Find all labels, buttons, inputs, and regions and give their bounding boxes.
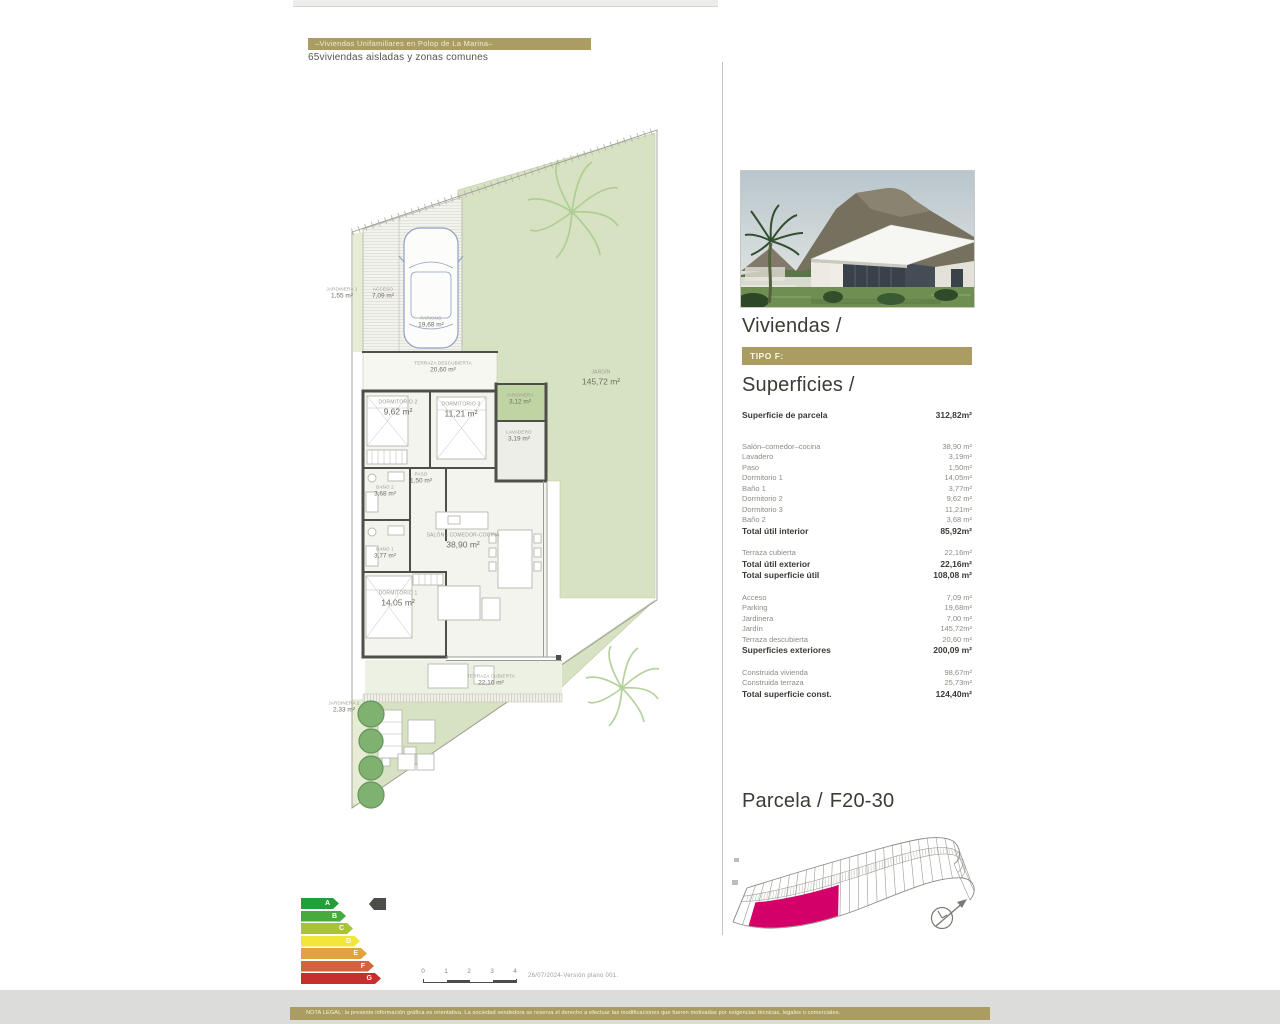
north-compass	[932, 899, 968, 929]
superficies-row: Baño 23,68 m²	[742, 515, 972, 526]
room-area: 3,77 m²	[374, 553, 396, 560]
energy-letter: B	[332, 913, 337, 920]
energy-arrow: A	[301, 898, 339, 909]
room-area: 145,72 m²	[582, 377, 620, 387]
room-name: BAÑO 1	[374, 547, 396, 552]
row-value: 98,67m²	[944, 668, 972, 679]
row-label: Dormitorio 2	[742, 494, 783, 505]
row-label: Construida terraza	[742, 678, 804, 689]
superficies-row: Lavadero3,19m²	[742, 452, 972, 463]
parcel-division	[958, 848, 971, 882]
scale-segment	[493, 980, 516, 983]
energy-letter: A	[325, 900, 330, 907]
legend-mark	[732, 880, 738, 885]
project-subtitle: 65viviendas aisladas y zonas comunes	[308, 52, 488, 63]
room-area: 22,16 m²	[467, 680, 515, 687]
row-label: Terraza cubierta	[742, 548, 796, 559]
row-value: 85,92m²	[940, 526, 972, 538]
room-area: 1,50 m²	[410, 478, 432, 485]
row-value: 20,60 m²	[942, 635, 972, 646]
viviendas-heading: Viviendas /	[742, 315, 842, 338]
parcela-code: F20-30	[830, 790, 895, 812]
scale-bar-numbers: 01234	[420, 968, 520, 976]
tipo-badge: TIPO F:	[742, 347, 972, 365]
project-title: –Viviendas Unifamiliares en Polop de La …	[315, 39, 493, 48]
room-label: TERRAZA CUBIERTA22,16 m²	[467, 674, 515, 687]
superficies-row: Jardín145,72m²	[742, 624, 972, 635]
energy-letter: D	[346, 938, 351, 945]
room-name: LAVADERO	[506, 430, 531, 435]
scale-bar	[423, 979, 517, 983]
row-value: 9,62 m²	[947, 494, 972, 505]
superficies-row: Total superficie const.124,40m²	[742, 689, 972, 701]
superficies-row: Parking19,68m²	[742, 603, 972, 614]
row-value: 19,68m²	[944, 603, 972, 614]
superficies-row: Dormitorio 311,21m²	[742, 505, 972, 516]
legal-note: NOTA LEGAL: la presente información gráf…	[306, 1010, 840, 1016]
row-value: 22,16m²	[944, 548, 972, 559]
row-label: Terraza descubierta	[742, 635, 808, 646]
parcel-strip	[733, 838, 974, 929]
row-label: Baño 2	[742, 515, 766, 526]
room-name: TERRAZA CUBIERTA	[467, 674, 515, 679]
scale-tick: 1	[444, 968, 448, 975]
row-value: 3,68 m²	[947, 515, 972, 526]
superficies-row: Acceso7,09 m²	[742, 593, 972, 604]
superficies-row: Superficie de parcela312,82m²	[742, 410, 972, 422]
room-name: PARKING	[418, 316, 444, 321]
room-area: 9,62 m²	[379, 407, 418, 417]
room-area: 7,09 m²	[372, 293, 394, 300]
legend-mark	[734, 858, 739, 862]
row-value: 22,16m²	[940, 559, 972, 571]
superficies-row: Construida terraza25,73m²	[742, 678, 972, 689]
row-label: Acceso	[742, 593, 767, 604]
room-label: JARDINERA 11,55 m²	[326, 287, 357, 300]
energy-grade-e: E	[301, 948, 381, 959]
row-label: Dormitorio 1	[742, 473, 783, 484]
superficies-row: Total útil interior85,92m²	[742, 526, 972, 538]
scale-segment	[424, 979, 447, 983]
row-label: Total superficie útil	[742, 570, 819, 582]
room-label: JARDINERA 22,33 m²	[328, 701, 359, 714]
superficies-row: Salón–comedor–cocina38,90 m²	[742, 442, 972, 453]
project-title-bar: –Viviendas Unifamiliares en Polop de La …	[308, 38, 591, 50]
row-label: Jardín	[742, 624, 763, 635]
car	[399, 228, 463, 348]
panel-divider	[722, 62, 723, 935]
room-label: DORMITORIO 29,62 m²	[379, 400, 418, 417]
plan-version: 26/07/2024-Versión plano 001.	[528, 973, 618, 979]
room-area: 2,33 m²	[328, 707, 359, 714]
room-name: DORMITORIO 3	[442, 402, 481, 408]
room-area: 3,19 m²	[506, 436, 531, 443]
superficies-row: Baño 13,77m²	[742, 484, 972, 495]
row-value: 7,09 m²	[947, 593, 972, 604]
row-label: Baño 1	[742, 484, 766, 495]
row-value: 108,08 m²	[933, 570, 972, 582]
room-label: BAÑO 13,77 m²	[374, 547, 396, 560]
room-name: ACCESO	[372, 287, 394, 292]
room-label: TERRAZA DESCUBIERTA20,60 m²	[414, 361, 471, 374]
superficies-row: Superficies exteriores200,09 m²	[742, 645, 972, 657]
energy-letter: E	[353, 950, 358, 957]
energy-letter: C	[339, 925, 344, 932]
row-value: 3,77m²	[949, 484, 972, 495]
tipo-label: TIPO F:	[750, 351, 784, 361]
superficies-row: Total superficie útil108,08 m²	[742, 570, 972, 582]
energy-letter: F	[361, 963, 365, 970]
superficies-row: Paso1,50m²	[742, 463, 972, 474]
row-value: 312,82m²	[936, 410, 972, 422]
plan-sheet-page: –Viviendas Unifamiliares en Polop de La …	[0, 0, 1280, 1024]
row-value: 7,00 m²	[947, 614, 972, 625]
room-label: DORMITORIO 114,05 m²	[379, 591, 418, 608]
row-value: 25,73m²	[944, 678, 972, 689]
row-label: Salón–comedor–cocina	[742, 442, 820, 453]
room-area: 11,21 m²	[442, 409, 481, 419]
room-name: JARDINERA 1	[326, 287, 357, 292]
room-name: JARDÍN	[582, 370, 620, 376]
room-area: 3,12 m²	[506, 399, 533, 406]
energy-grade-g: G	[301, 973, 381, 984]
superficies-row: Dormitorio 114,05m²	[742, 473, 972, 484]
parcela-label: Parcela /	[742, 790, 823, 812]
room-name: SALÓN - COMEDOR-COCINA	[426, 533, 499, 539]
sheet-top-strip	[293, 0, 718, 7]
energy-arrow: C	[301, 923, 353, 934]
room-label: PARKING19,68 m²	[418, 316, 444, 329]
room-name: JARDINERA	[506, 393, 533, 398]
energy-arrow: B	[301, 911, 346, 922]
energy-grade-f: F	[301, 961, 381, 972]
room-name: TERRAZA DESCUBIERTA	[414, 361, 471, 366]
row-label: Paso	[742, 463, 759, 474]
superficies-section: Superficie de parcela312,82m²	[742, 410, 972, 422]
row-label: Parking	[742, 603, 767, 614]
scale-segment	[447, 980, 470, 983]
superficies-row: Dormitorio 29,62 m²	[742, 494, 972, 505]
energy-grade-a: A	[301, 898, 381, 909]
row-label: Construida vivienda	[742, 668, 808, 679]
room-label: SALÓN - COMEDOR-COCINA38,90 m²	[426, 533, 499, 550]
superficies-section: Construida vivienda98,67m²Construida ter…	[742, 668, 972, 701]
room-label: DORMITORIO 311,21 m²	[442, 402, 481, 419]
energy-arrow: E	[301, 948, 367, 959]
superficies-section: Salón–comedor–cocina38,90 m²Lavadero3,19…	[742, 442, 972, 538]
superficies-heading: Superficies /	[742, 374, 855, 397]
row-label: Lavadero	[742, 452, 773, 463]
row-value: 14,05m²	[944, 473, 972, 484]
row-value: 145,72m²	[940, 624, 972, 635]
room-label: BAÑO 23,68 m²	[374, 485, 396, 498]
room-label: PASO1,50 m²	[410, 472, 432, 485]
scale-tick: 4	[513, 968, 517, 975]
scale-tick: 2	[467, 968, 471, 975]
room-area: 38,90 m²	[426, 540, 499, 550]
row-label: Total superficie const.	[742, 689, 832, 701]
energy-efficiency-label: ABCDEFG	[301, 898, 381, 986]
row-value: 124,40m²	[936, 689, 972, 701]
superficies-section: Terraza cubierta22,16m²Total útil exteri…	[742, 548, 972, 582]
room-name: BAÑO 2	[374, 485, 396, 490]
energy-arrow: D	[301, 936, 360, 947]
parcela-heading: Parcela /F20-30	[742, 790, 894, 813]
room-area: 14,05 m²	[379, 598, 418, 608]
row-label: Superficie de parcela	[742, 410, 828, 422]
room-label: LAVADERO3,19 m²	[506, 430, 531, 443]
superficies-row: Terraza descubierta20,60 m²	[742, 635, 972, 646]
energy-grade-b: B	[301, 911, 381, 922]
superficies-table: Superficie de parcela312,82m²Salón–comed…	[742, 410, 972, 711]
row-value: 3,19m²	[949, 452, 972, 463]
room-label: JARDÍN145,72 m²	[582, 370, 620, 387]
row-label: Jardinera	[742, 614, 773, 625]
row-label: Total útil exterior	[742, 559, 810, 571]
room-name: PASO	[410, 472, 432, 477]
scale-segment	[470, 979, 493, 983]
superficies-row: Total útil exterior22,16m²	[742, 559, 972, 571]
row-value: 11,21m²	[945, 505, 972, 516]
site-plan	[727, 816, 980, 944]
room-area: 19,68 m²	[418, 322, 444, 329]
energy-arrow: F	[301, 961, 374, 972]
room-area: 20,60 m²	[414, 367, 471, 374]
scale-tick: 0	[421, 968, 425, 975]
room-label: ACCESO7,09 m²	[372, 287, 394, 300]
room-name: DORMITORIO 2	[379, 400, 418, 406]
energy-letter: G	[367, 975, 372, 982]
row-value: 200,09 m²	[933, 645, 972, 657]
scale-tick: 3	[490, 968, 494, 975]
room-name: DORMITORIO 1	[379, 591, 418, 597]
superficies-row: Terraza cubierta22,16m²	[742, 548, 972, 559]
row-label: Superficies exteriores	[742, 645, 831, 657]
floor-plan	[330, 120, 670, 820]
energy-grade-d: D	[301, 936, 381, 947]
house-render-photo	[740, 170, 975, 308]
superficies-section: Acceso7,09 m²Parking19,68m²Jardinera7,00…	[742, 593, 972, 657]
superficies-row: Construida vivienda98,67m²	[742, 668, 972, 679]
row-label: Dormitorio 3	[742, 505, 783, 516]
row-value: 1,50m²	[949, 463, 972, 474]
room-area: 1,55 m²	[326, 293, 357, 300]
room-name: JARDINERA 2	[328, 701, 359, 706]
room-area: 3,68 m²	[374, 491, 396, 498]
legal-note-bar: NOTA LEGAL: la presente información gráf…	[290, 1007, 990, 1020]
row-label: Total útil interior	[742, 526, 808, 538]
energy-arrow: G	[301, 973, 381, 984]
superficies-row: Jardinera7,00 m²	[742, 614, 972, 625]
room-label: JARDINERA3,12 m²	[506, 393, 533, 406]
energy-grade-c: C	[301, 923, 381, 934]
row-value: 38,90 m²	[942, 442, 972, 453]
